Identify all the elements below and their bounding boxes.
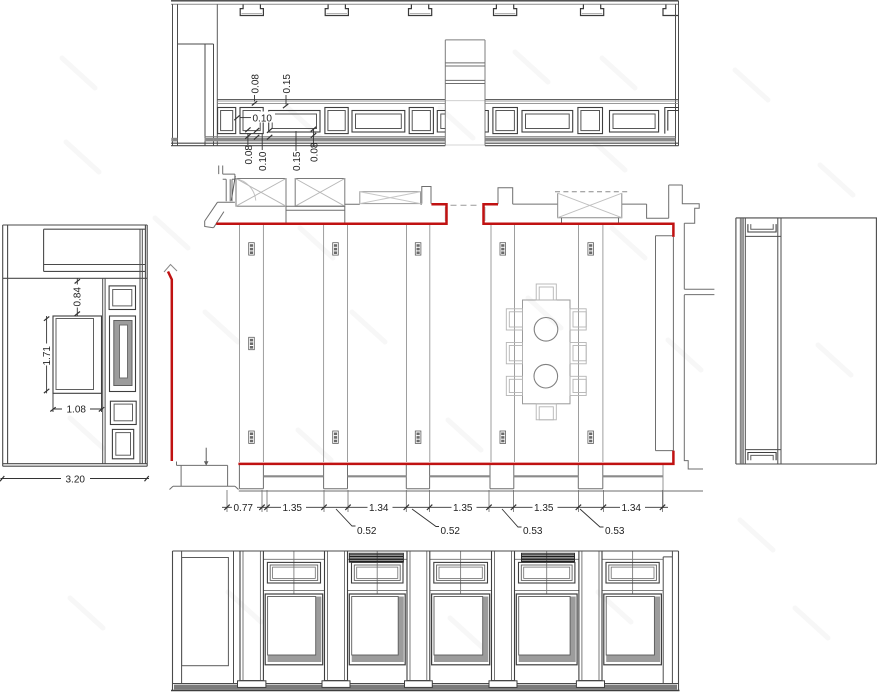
- svg-text:1.35: 1.35: [534, 503, 554, 514]
- svg-text:0.08: 0.08: [309, 142, 320, 162]
- svg-text:0.08: 0.08: [244, 145, 255, 165]
- svg-text:0.52: 0.52: [441, 526, 461, 537]
- svg-text:0.53: 0.53: [523, 526, 543, 537]
- svg-text:1.71: 1.71: [42, 346, 53, 366]
- svg-text:0.10: 0.10: [258, 151, 269, 171]
- svg-text:3.20: 3.20: [66, 474, 86, 485]
- svg-text:0.15: 0.15: [292, 151, 303, 171]
- svg-text:0.10: 0.10: [253, 114, 273, 125]
- svg-text:1.35: 1.35: [453, 503, 473, 514]
- svg-text:0.77: 0.77: [234, 503, 254, 514]
- svg-text:1.35: 1.35: [283, 503, 303, 514]
- svg-text:0.52: 0.52: [357, 526, 377, 537]
- svg-text:0.84: 0.84: [73, 287, 84, 307]
- svg-text:1.08: 1.08: [67, 405, 87, 416]
- svg-text:1.34: 1.34: [369, 503, 389, 514]
- svg-text:0.53: 0.53: [605, 526, 625, 537]
- svg-text:0.15: 0.15: [282, 74, 293, 94]
- svg-text:0.08: 0.08: [250, 74, 261, 94]
- svg-text:1.34: 1.34: [622, 503, 642, 514]
